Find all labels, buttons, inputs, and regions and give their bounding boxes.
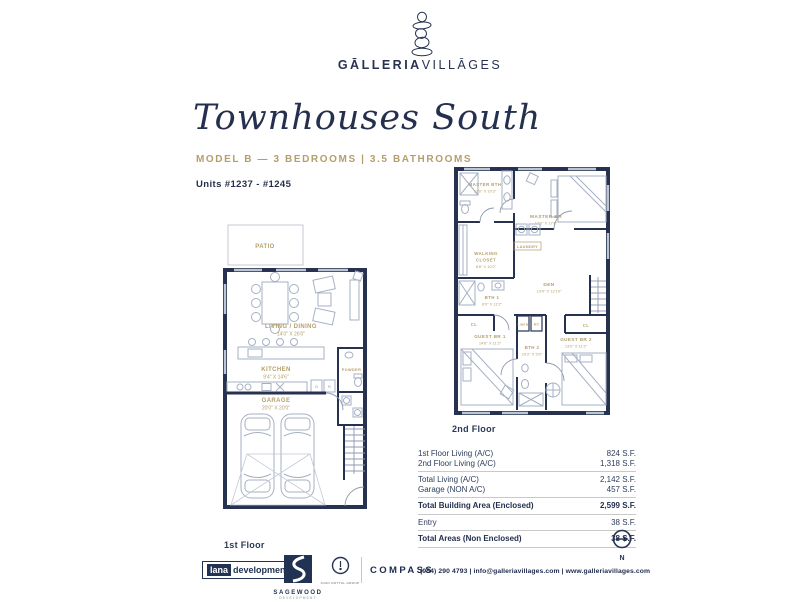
area-row: 1st Floor Living (A/C) 824 S.F. — [418, 449, 636, 459]
den-dims: 13'4" X 12'10" — [537, 289, 562, 294]
contact-info: (954) 290 4793 | info@galleriavillages.c… — [420, 568, 650, 575]
area-label: Total Living (A/C) — [418, 475, 479, 485]
lana-logo-box: lana — [207, 564, 231, 576]
guest2-label: GUEST BR 2 — [560, 337, 592, 342]
kitchen-label: KITCHEN — [261, 367, 290, 373]
master-br-label: MASTER BR — [530, 214, 562, 220]
master-br-dims: 12'0" X 17'6" — [535, 221, 558, 226]
ac-label: AC — [534, 323, 540, 327]
area-table: 1st Floor Living (A/C) 824 S.F. 2nd Floo… — [418, 449, 636, 551]
stacked-stones-logo — [402, 11, 442, 57]
area-value: 2,142 S.F. — [600, 475, 636, 485]
linen-label: LINEN — [518, 323, 529, 327]
living-dims: 14'0" X 26'0" — [277, 332, 305, 338]
area-value: 1,318 S.F. — [600, 459, 636, 469]
appliance-r-label: R — [328, 384, 331, 389]
guest1-dims: 14'6" X 11'2" — [479, 341, 502, 346]
second-floor-plan: MASTER BTH 12'0" X 10'3" MASTER BR 12'0"… — [450, 163, 614, 419]
footer-divider — [361, 557, 362, 583]
area-label: 1st Floor Living (A/C) — [418, 449, 493, 459]
garage-dims: 20'0" X 20'0" — [262, 406, 290, 412]
sagewood-subtitle: DEVELOPMENT — [266, 596, 330, 600]
living-label: LIVING / DINING — [265, 324, 317, 330]
area-divider — [418, 547, 636, 548]
brand-name: GĀLLERIAVILLĀGES — [310, 58, 530, 72]
north-label: N — [610, 555, 634, 562]
patio-label: PATIO — [255, 244, 274, 250]
units-range: Units #1237 - #1245 — [196, 179, 291, 190]
area-value: 38 S.F. — [611, 518, 636, 528]
flyer-page: GĀLLERIAVILLĀGES Townhouses South MODEL … — [0, 0, 800, 600]
brand-name-light: VILLĀGES — [422, 58, 502, 72]
master-bath-dims: 12'0" X 10'3" — [474, 189, 497, 194]
bath1-dims: 6'0" X 11'2" — [482, 302, 503, 307]
den-label: DEN — [543, 282, 554, 288]
area-value: 824 S.F. — [607, 449, 636, 459]
area-row-total: Total Building Area (Enclosed) 2,599 S.F… — [418, 501, 636, 511]
guest2-dims: 13'0" X 11'2" — [565, 344, 588, 349]
area-label: Garage (NON A/C) — [418, 485, 485, 495]
walking-closet-label-1: WALKING — [474, 251, 498, 256]
closet-right-label: CL — [583, 323, 589, 328]
first-floor-plan: PATIO LIVING / DINING 14'0" X 26'0" — [214, 222, 370, 514]
area-label: 2nd Floor Living (A/C) — [418, 459, 496, 469]
area-label: Entry — [418, 518, 437, 528]
area-divider — [418, 497, 636, 498]
page-title: Townhouses South — [193, 98, 541, 138]
master-bath-label: MASTER BTH — [469, 182, 502, 187]
kitchen-dims: 9'4" X 14'6" — [263, 375, 289, 381]
area-label: Total Building Area (Enclosed) — [418, 501, 534, 511]
closet-left-label: CL — [471, 322, 477, 327]
powder-label: POWDER — [342, 368, 362, 372]
walking-closet-label-2: CLOSET — [476, 258, 496, 263]
area-value: 2,599 S.F. — [600, 501, 636, 511]
garage-label: GARAGE — [262, 398, 291, 404]
first-floor-caption: 1st Floor — [224, 540, 265, 550]
area-divider — [418, 471, 636, 472]
walking-closet-dims: 8'8" X 10'2" — [476, 264, 497, 269]
appliance-g-label: G — [315, 384, 318, 389]
second-floor-caption: 2nd Floor — [452, 424, 496, 434]
guest1-label: GUEST BR 1 — [474, 334, 506, 339]
north-indicator: N — [610, 528, 634, 562]
bath2-label: BTH 2 — [525, 345, 540, 350]
area-label: Total Areas (Non Enclosed) — [418, 534, 522, 544]
area-row-total: Total Areas (Non Enclosed) 38 S.F. — [418, 534, 636, 544]
bath2-dims: 10'2" X 5'0" — [522, 352, 543, 357]
area-row: Entry 38 S.F. — [418, 518, 636, 528]
area-divider — [418, 514, 636, 515]
laundry-label: LAUNDRY — [517, 245, 538, 249]
model-subtitle: MODEL B — 3 BEDROOMS | 3.5 BATHROOMS — [196, 154, 472, 165]
group-logo: JOAN DOTTAL GROUP — [318, 556, 362, 585]
area-row: 2nd Floor Living (A/C) 1,318 S.F. — [418, 459, 636, 469]
area-row: Total Living (A/C) 2,142 S.F. — [418, 475, 636, 485]
bath1-label: BTH 1 — [485, 295, 500, 300]
area-value: 457 S.F. — [607, 485, 636, 495]
north-arrow-icon — [611, 528, 633, 550]
area-row: Garage (NON A/C) 457 S.F. — [418, 485, 636, 495]
brand-name-bold: GĀLLERIA — [338, 58, 422, 72]
group-circle-icon — [331, 556, 350, 575]
group-logo-text: JOAN DOTTAL GROUP — [318, 581, 362, 585]
second-floor-walls — [456, 169, 608, 413]
area-divider — [418, 530, 636, 531]
sagewood-s-icon — [284, 555, 312, 583]
